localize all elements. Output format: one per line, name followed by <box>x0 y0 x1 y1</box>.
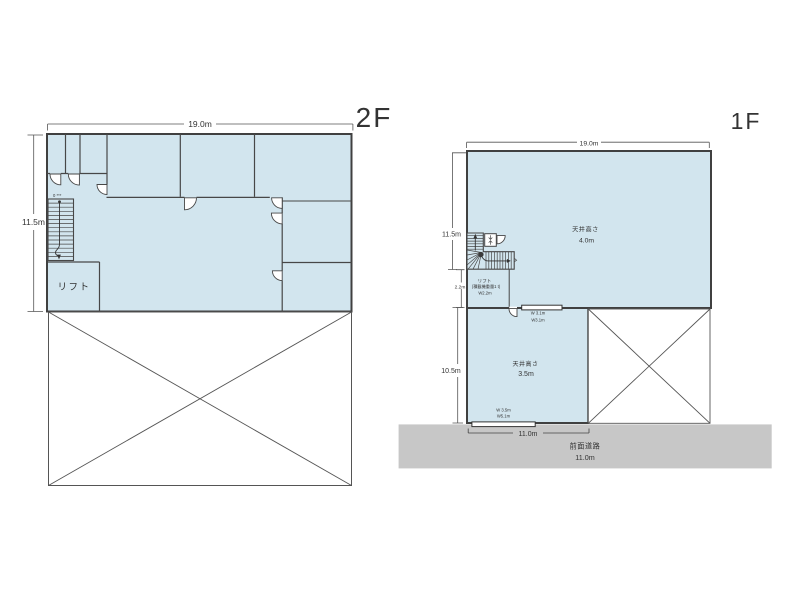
svg-text:天井高さ: 天井高さ <box>512 360 538 368</box>
svg-text:リフト: リフト <box>57 282 90 293</box>
svg-text:リフト: リフト <box>478 278 492 283</box>
svg-text:4.0m: 4.0m <box>579 238 594 245</box>
svg-text:W2.2m: W2.2m <box>478 290 492 295</box>
svg-text:11.0m: 11.0m <box>575 453 594 462</box>
svg-text:W 3.5m: W 3.5m <box>496 407 511 412</box>
svg-text:W5.1m: W5.1m <box>497 414 511 419</box>
svg-text:(積載機重量1 t): (積載機重量1 t) <box>472 283 501 290</box>
svg-text:11.5m: 11.5m <box>442 232 461 239</box>
svg-text:19.0m: 19.0m <box>580 141 599 148</box>
svg-text:0 ***: 0 *** <box>53 193 62 198</box>
svg-text:10.5m: 10.5m <box>441 368 461 375</box>
svg-text:前面道路: 前面道路 <box>570 441 601 450</box>
svg-text:W 3.1m: W 3.1m <box>531 311 546 316</box>
svg-text:3.5m: 3.5m <box>518 371 534 378</box>
svg-text:W3.1m: W3.1m <box>531 318 545 323</box>
svg-text:天井高さ: 天井高さ <box>572 226 599 234</box>
svg-text:1F: 1F <box>731 108 762 134</box>
svg-text:11.5m: 11.5m <box>22 217 45 227</box>
svg-text:11.0m: 11.0m <box>519 431 538 438</box>
svg-text:19.0m: 19.0m <box>188 119 212 129</box>
svg-text:2.2m: 2.2m <box>455 284 466 290</box>
svg-text:2F: 2F <box>356 102 393 133</box>
